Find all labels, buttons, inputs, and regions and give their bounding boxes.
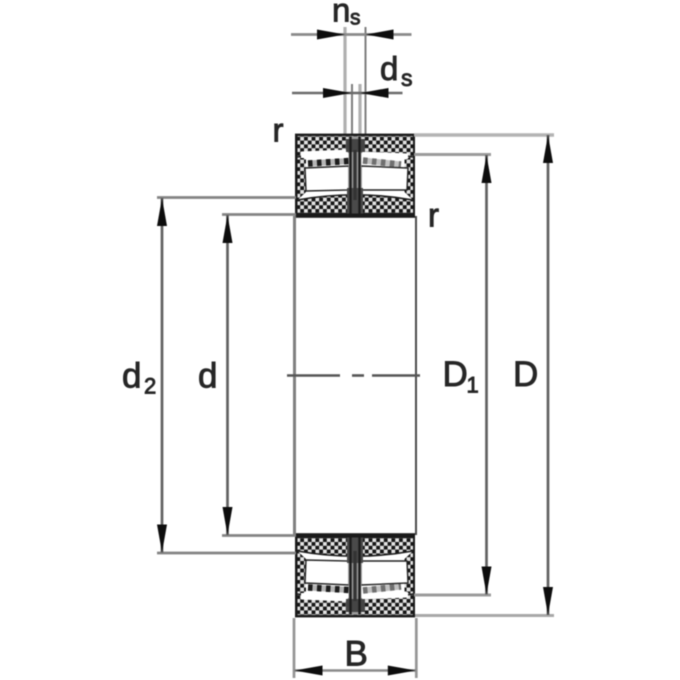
svg-text:r: r	[273, 112, 284, 149]
svg-text:2: 2	[144, 374, 156, 399]
svg-text:B: B	[345, 635, 368, 674]
svg-text:d: d	[380, 50, 398, 87]
svg-text:d: d	[122, 357, 141, 396]
svg-text:D: D	[513, 355, 538, 394]
svg-text:r: r	[428, 197, 439, 234]
svg-text:s: s	[350, 7, 361, 30]
svg-text:d: d	[198, 357, 217, 396]
svg-text:D: D	[443, 355, 468, 394]
svg-text:n: n	[332, 0, 350, 29]
svg-text:s: s	[401, 65, 413, 91]
svg-text:1: 1	[467, 373, 479, 398]
